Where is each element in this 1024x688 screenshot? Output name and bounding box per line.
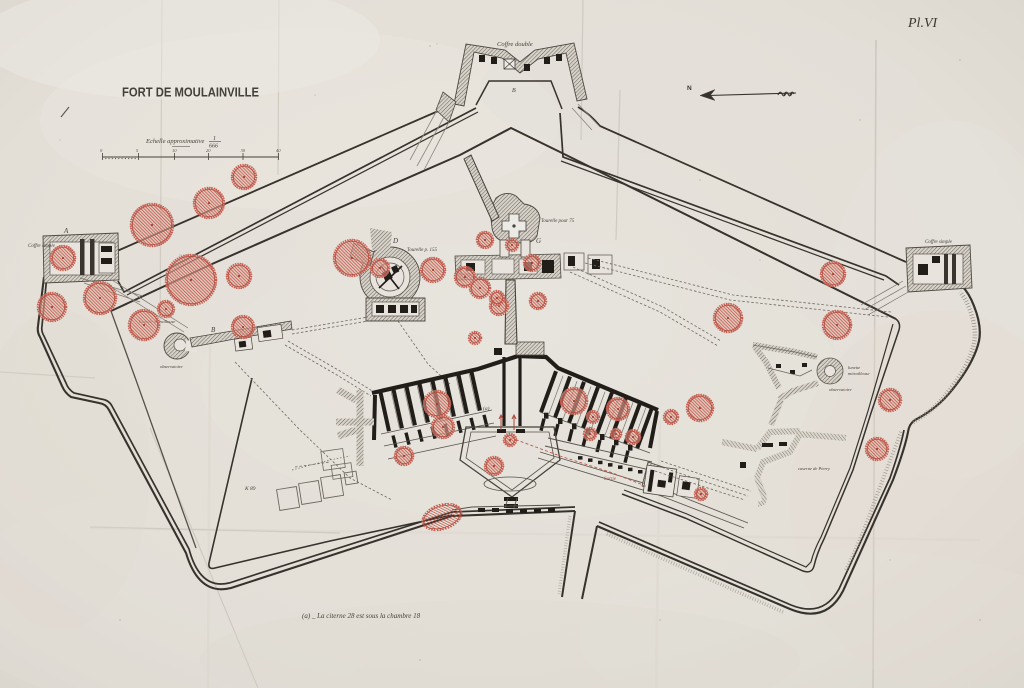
svg-text:Echelle approximative: Echelle approximative	[145, 138, 205, 145]
svg-text:FORT DE MOULAINVILLE: FORT DE MOULAINVILLE	[122, 85, 259, 100]
svg-text:40: 40	[276, 148, 281, 153]
svg-text:(a): (a)	[483, 405, 490, 412]
svg-text:lunette: lunette	[848, 365, 860, 370]
svg-text:mitrailleuse: mitrailleuse	[848, 371, 870, 376]
svg-text:Coffre double: Coffre double	[497, 41, 533, 48]
svg-text:1: 1	[213, 136, 216, 142]
svg-text:D: D	[392, 237, 398, 245]
svg-text:10: 10	[172, 148, 177, 153]
svg-text:A: A	[63, 227, 69, 235]
svg-text:observatoire: observatoire	[829, 387, 852, 392]
svg-text:observatoire: observatoire	[160, 364, 183, 369]
svg-text:B: B	[512, 88, 516, 94]
svg-text:K 89: K 89	[244, 486, 256, 492]
svg-text:G: G	[536, 237, 541, 245]
svg-text:(a) _ La citerne 28 est sous l: (a) _ La citerne 28 est sous la chambre …	[302, 612, 421, 620]
svg-text:Tourelle p. 155: Tourelle p. 155	[407, 248, 438, 253]
svg-text:Sortie: Sortie	[604, 477, 617, 482]
svg-text:Pl.VI: Pl.VI	[907, 16, 938, 31]
svg-text:B: B	[211, 326, 216, 334]
svg-text:caserne de Pierry: caserne de Pierry	[798, 466, 830, 471]
svg-text:Tourelle pour 75: Tourelle pour 75	[541, 219, 575, 224]
svg-text:Coffre simple: Coffre simple	[28, 244, 56, 249]
svg-text:Coffre simple: Coffre simple	[925, 240, 953, 245]
svg-text:20: 20	[206, 148, 211, 153]
svg-text:N: N	[687, 85, 692, 92]
svg-text:30: 30	[241, 148, 246, 153]
